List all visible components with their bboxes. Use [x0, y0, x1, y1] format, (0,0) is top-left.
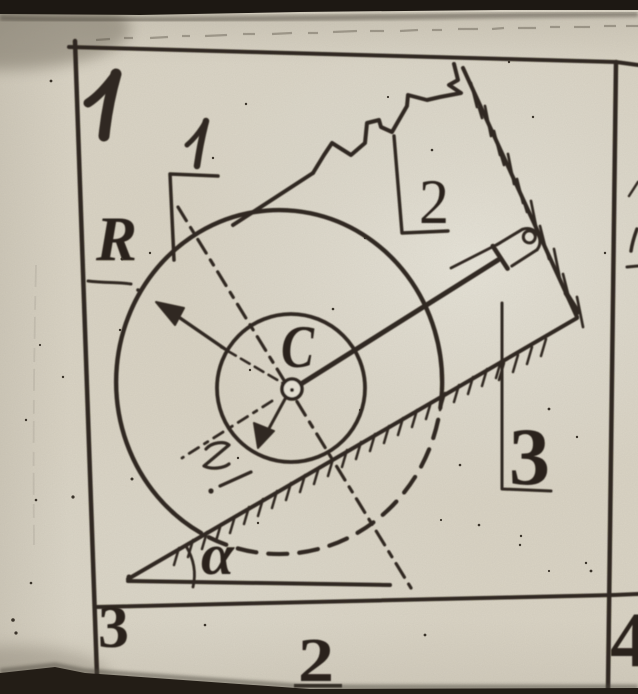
svg-text:α: α [201, 522, 235, 587]
svg-text:2: 2 [298, 627, 334, 694]
svg-text:4: 4 [610, 596, 638, 683]
svg-text:3: 3 [98, 594, 129, 660]
svg-text:3: 3 [509, 411, 550, 502]
svg-text:2: 2 [419, 166, 449, 237]
svg-text:C: C [281, 314, 315, 380]
svg-text:R: R [95, 203, 137, 274]
